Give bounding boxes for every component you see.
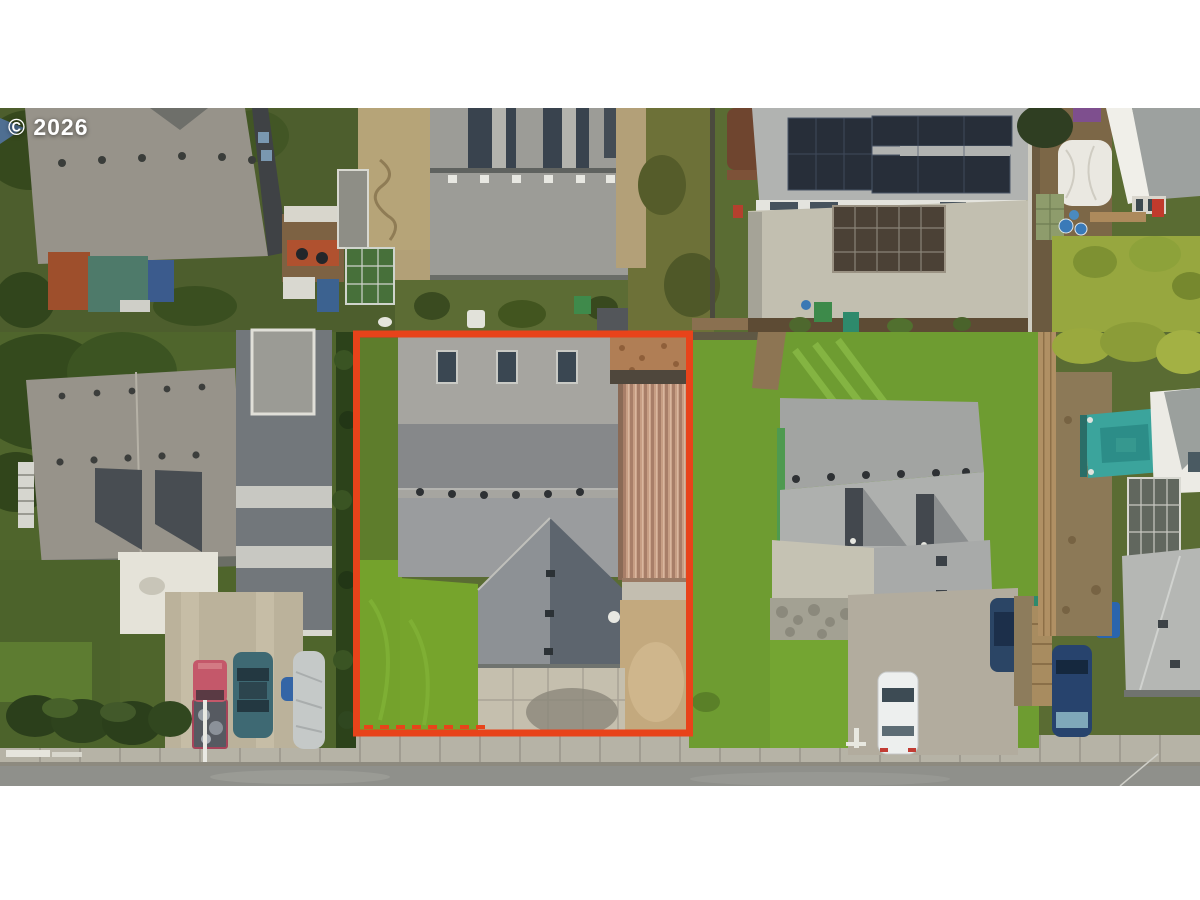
window bbox=[1136, 199, 1143, 211]
firewood bbox=[727, 170, 757, 180]
gravel-strip bbox=[1014, 596, 1034, 706]
white-chair bbox=[378, 317, 392, 327]
dormer-dot bbox=[850, 538, 856, 544]
rock-border bbox=[770, 598, 854, 640]
dormer bbox=[845, 488, 863, 546]
blue-car bbox=[1052, 645, 1092, 737]
taillight bbox=[908, 748, 916, 752]
car-roof bbox=[239, 682, 267, 699]
long-building bbox=[236, 330, 332, 636]
skylights bbox=[437, 351, 577, 383]
street-asphalt bbox=[0, 766, 1200, 786]
subject-lawn-left-bright bbox=[358, 560, 402, 733]
dormer bbox=[916, 494, 934, 550]
curb bbox=[0, 762, 1200, 766]
rear-window bbox=[882, 726, 914, 736]
greenhouse-frame bbox=[346, 248, 394, 304]
green-bin bbox=[814, 302, 832, 322]
white-car bbox=[878, 672, 918, 754]
blue-ball bbox=[1075, 223, 1087, 235]
small-shed-roof bbox=[338, 170, 368, 248]
satellite-dish bbox=[608, 611, 620, 623]
purple-tarp bbox=[1073, 108, 1101, 122]
wood-plank bbox=[1090, 212, 1146, 222]
truck-roof-highlight bbox=[198, 663, 222, 669]
lawn-spot bbox=[692, 692, 720, 712]
carport-bottom-edge bbox=[622, 578, 687, 582]
red-item bbox=[1152, 199, 1164, 217]
front-lawn bbox=[770, 640, 850, 748]
eave-line bbox=[430, 168, 628, 173]
blue-tarp-shed bbox=[148, 260, 174, 302]
solar-arrays bbox=[788, 116, 1012, 193]
gazebo-center bbox=[1116, 438, 1136, 452]
subject-roof-shadow-band bbox=[398, 424, 622, 488]
blue-item bbox=[801, 300, 811, 310]
eave-shadow bbox=[430, 275, 628, 280]
house-top-center bbox=[430, 108, 628, 280]
gable-column bbox=[562, 108, 576, 168]
screenshot: © 2026 bbox=[0, 0, 1200, 900]
roof-vent bbox=[1170, 660, 1180, 668]
windshield bbox=[882, 688, 914, 702]
far-right-house-roof bbox=[1122, 548, 1200, 697]
teal-gazebo bbox=[1080, 408, 1162, 478]
gravel-yard bbox=[1056, 372, 1112, 636]
copyright-watermark: © 2026 bbox=[8, 114, 89, 141]
red-item bbox=[733, 205, 743, 218]
top-row bbox=[0, 104, 1200, 334]
carport-metal-roof bbox=[622, 384, 686, 580]
window bbox=[258, 132, 269, 143]
fence-line bbox=[710, 108, 715, 326]
lawn-patch bbox=[0, 642, 92, 702]
bush bbox=[1073, 246, 1117, 278]
rear-window bbox=[1056, 712, 1088, 728]
driveway-stain bbox=[526, 688, 618, 736]
weeds bbox=[638, 155, 686, 215]
gazebo-frame bbox=[1080, 415, 1087, 477]
white-bucket bbox=[467, 310, 485, 328]
left-neighbor bbox=[0, 330, 338, 762]
gravel-dark-band bbox=[610, 370, 687, 384]
teal-car bbox=[233, 652, 273, 738]
blue-ball bbox=[1059, 219, 1073, 233]
garden-strip bbox=[395, 280, 663, 332]
eave-shadow bbox=[1124, 690, 1200, 697]
window bbox=[261, 150, 272, 161]
white-panel bbox=[120, 300, 150, 312]
blue-ball bbox=[1069, 210, 1079, 220]
center-roof bbox=[430, 108, 628, 280]
truck-windshield bbox=[196, 690, 224, 700]
skylight-band bbox=[236, 486, 332, 508]
white-post bbox=[203, 700, 207, 762]
street-patch bbox=[690, 772, 950, 786]
subject-property bbox=[357, 317, 690, 736]
rust-shed-roof bbox=[48, 252, 90, 310]
white-post-arm bbox=[846, 742, 866, 746]
teal-bin bbox=[843, 312, 859, 332]
sunroom bbox=[833, 206, 945, 272]
deck-clutter bbox=[282, 206, 344, 312]
street-patch bbox=[210, 770, 390, 784]
subject-front-lawn bbox=[400, 578, 478, 733]
patio-shadow bbox=[748, 212, 762, 322]
wood-fence-vertical bbox=[1038, 332, 1056, 636]
tree bbox=[1017, 104, 1073, 148]
ladder bbox=[18, 462, 34, 528]
patio-scuff bbox=[139, 577, 165, 595]
bush bbox=[1129, 236, 1181, 272]
house-top-right-solar bbox=[733, 108, 1030, 218]
window bbox=[1188, 452, 1200, 472]
skylight-band bbox=[236, 546, 332, 568]
white-curb bbox=[6, 750, 50, 757]
covered-car bbox=[293, 651, 325, 749]
white-curb bbox=[52, 752, 82, 757]
rear-window bbox=[237, 700, 269, 712]
roof-vent bbox=[1158, 620, 1168, 628]
window bbox=[770, 202, 798, 210]
subject-driveway bbox=[478, 668, 625, 736]
green-bin bbox=[574, 296, 591, 314]
windshield bbox=[237, 668, 269, 681]
carport-edge-shadow bbox=[618, 384, 623, 580]
patio-garden-bed bbox=[748, 317, 1032, 334]
greenhouse bbox=[1128, 478, 1180, 558]
shed-roof bbox=[252, 330, 314, 414]
gable-column bbox=[492, 108, 506, 168]
windshield bbox=[1056, 660, 1088, 674]
aerial-photo bbox=[0, 0, 1200, 900]
taillight bbox=[880, 748, 888, 752]
red-pickup-truck bbox=[193, 660, 227, 748]
dirt-light-patch bbox=[628, 642, 684, 722]
